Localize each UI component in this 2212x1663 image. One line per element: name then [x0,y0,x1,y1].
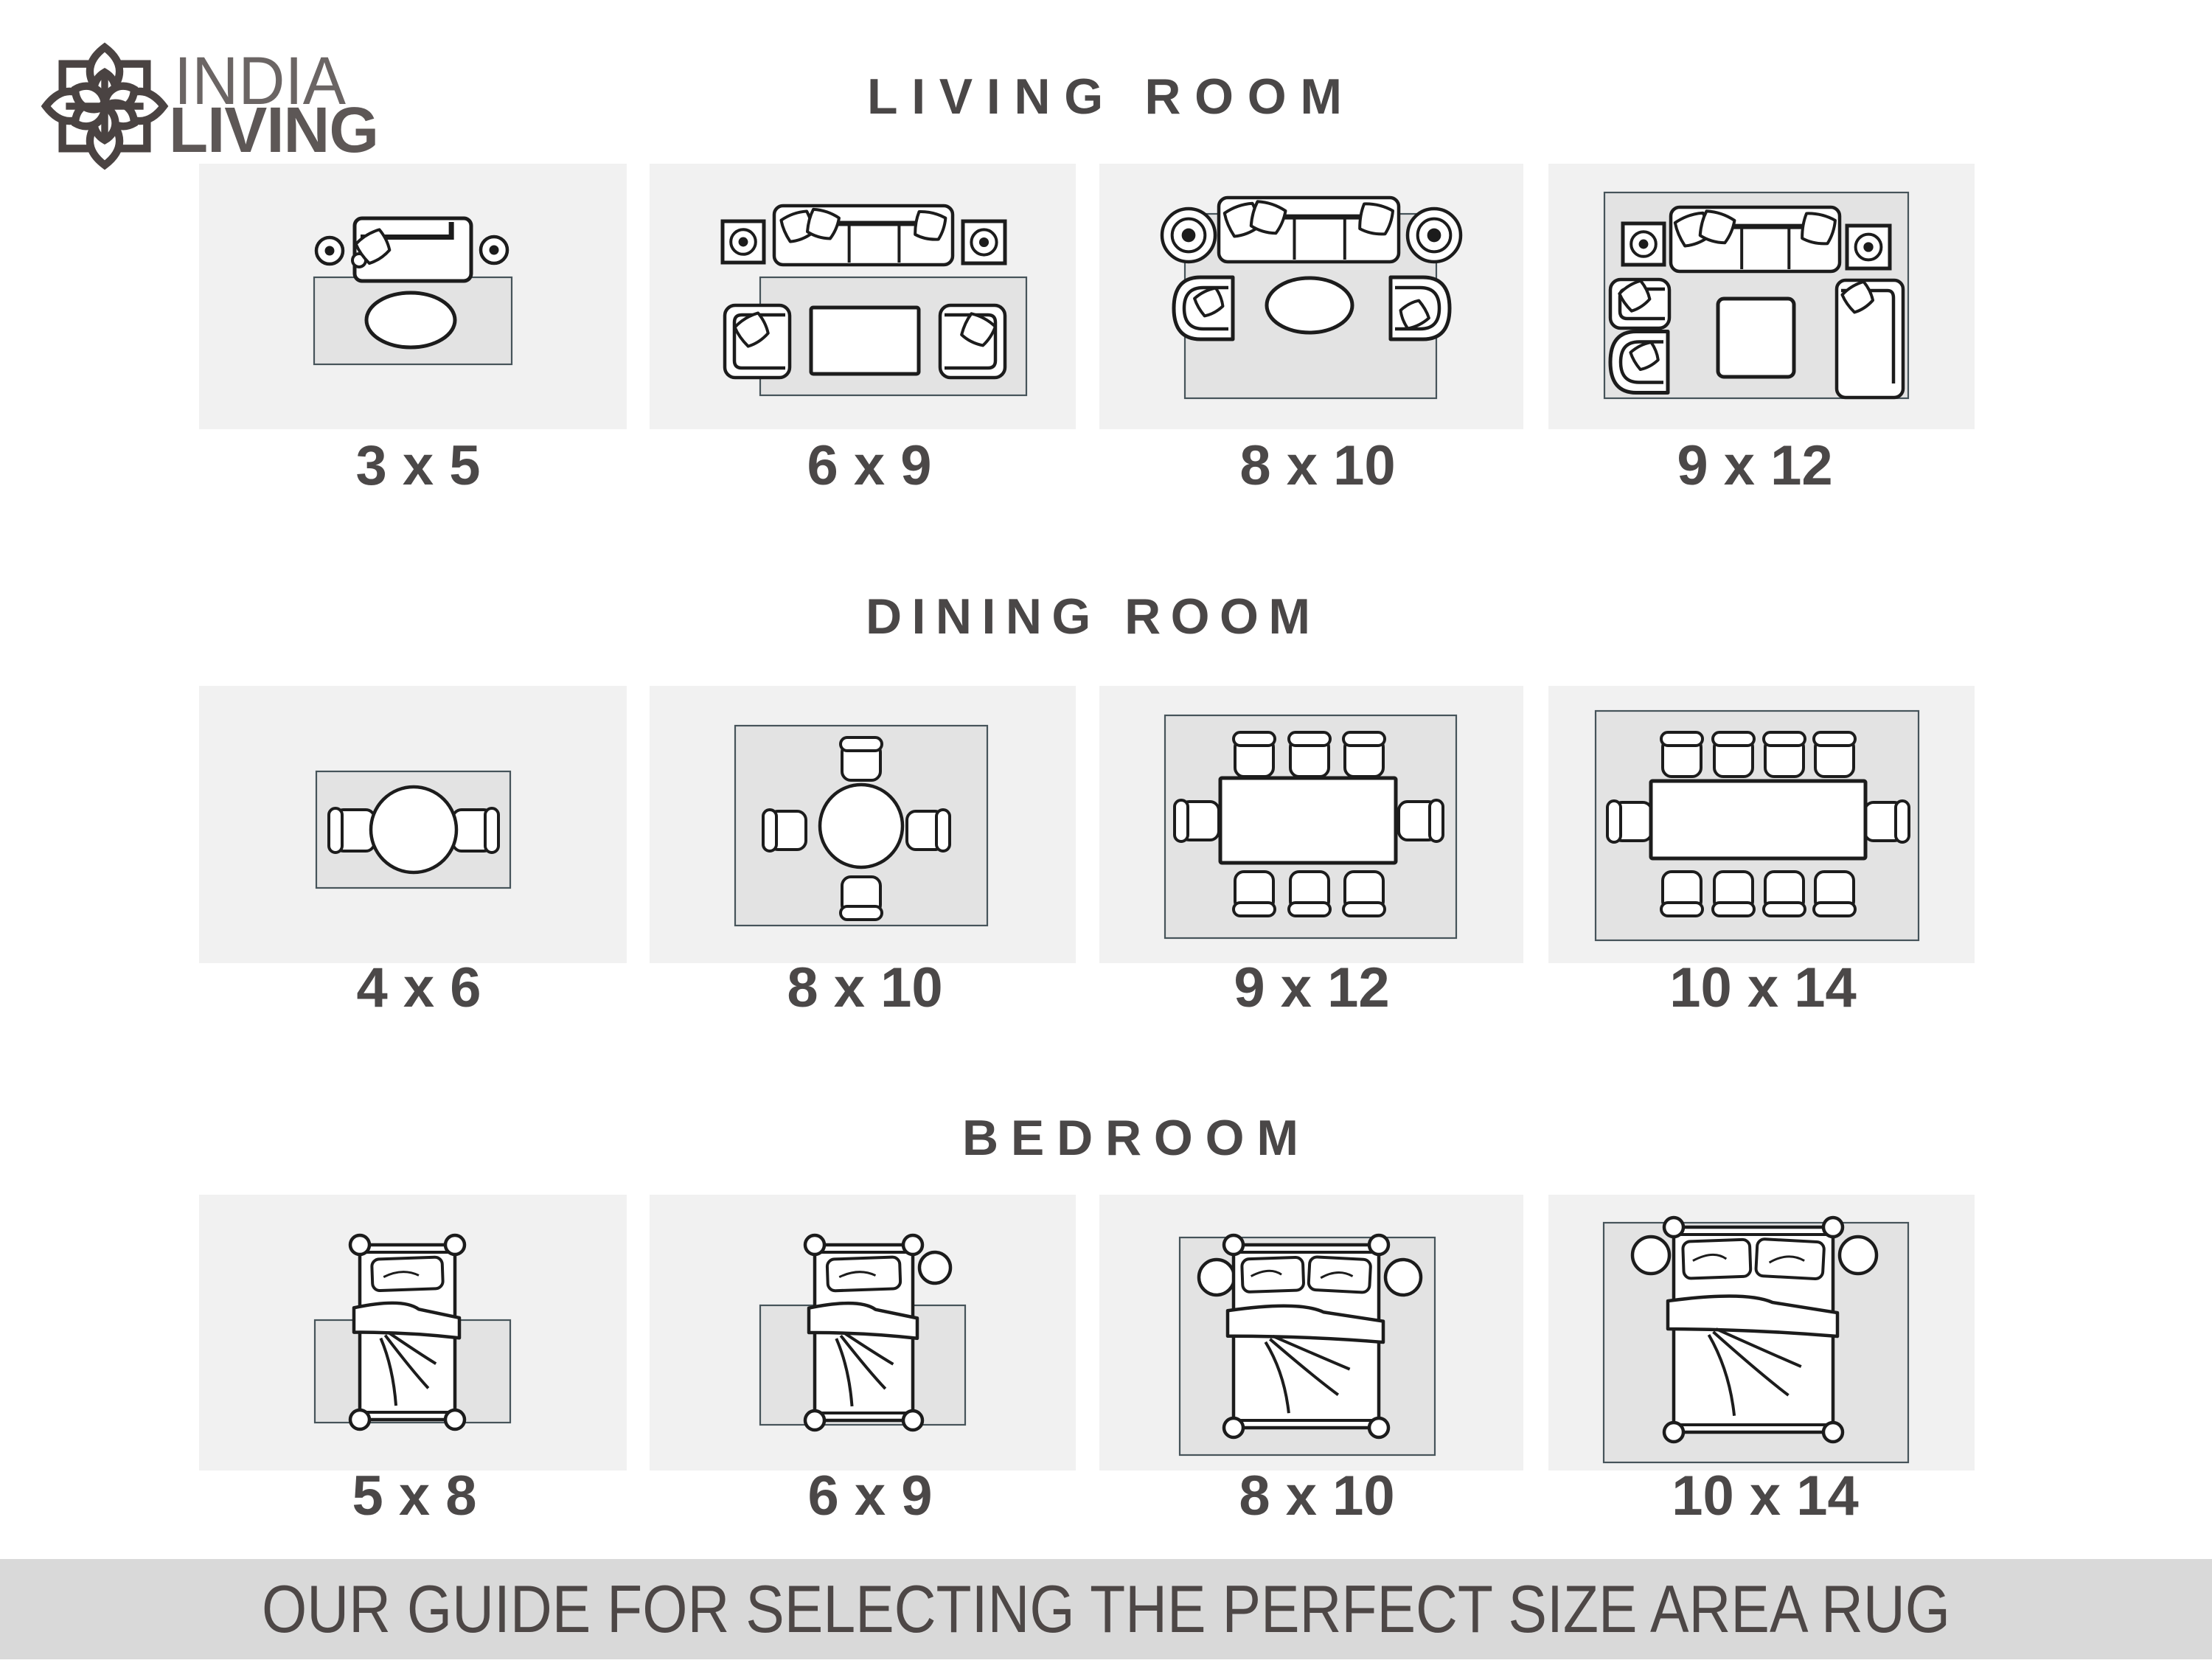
svg-text:4 x 6: 4 x 6 [356,957,481,1019]
svg-text:6 x 9: 6 x 9 [807,1465,932,1527]
svg-text:3 x 5: 3 x 5 [355,434,480,497]
svg-text:9 x 12: 9 x 12 [1677,434,1832,497]
svg-text:LIVING: LIVING [169,94,379,166]
svg-text:10 x 14: 10 x 14 [1669,957,1857,1019]
svg-text:9 x 12: 9 x 12 [1234,957,1389,1019]
svg-text:8 x 10: 8 x 10 [1239,434,1395,497]
svg-text:8 x 10: 8 x 10 [787,957,942,1019]
svg-text:10 x 14: 10 x 14 [1672,1465,1859,1527]
svg-text:5 x 8: 5 x 8 [352,1465,476,1527]
svg-text:8 x 10: 8 x 10 [1239,1465,1394,1527]
svg-text:6 x 9: 6 x 9 [807,434,931,497]
svg-text:OUR GUIDE FOR SELECTING THE PE: OUR GUIDE FOR SELECTING THE PERFECT SIZE… [262,1572,1950,1647]
